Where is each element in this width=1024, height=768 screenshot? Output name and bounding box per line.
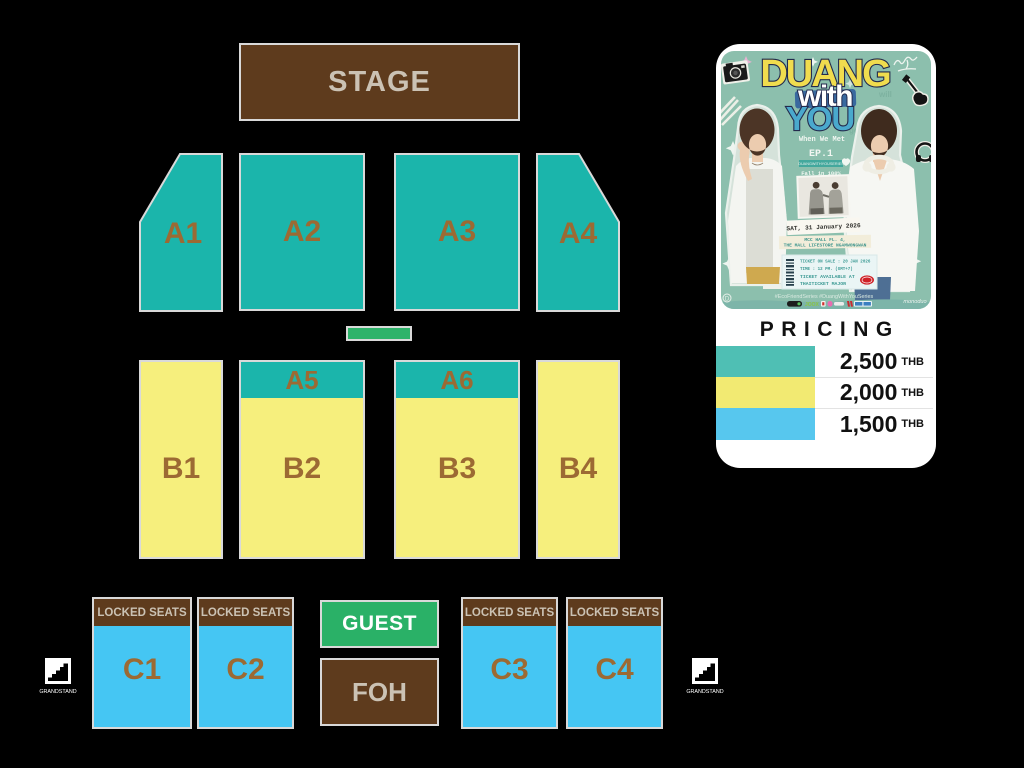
svg-text:GRANDSTAND: GRANDSTAND — [39, 689, 76, 695]
svg-text:JOOX: JOOX — [805, 302, 820, 308]
svg-text:TIME : 12 PM. (GMT+7): TIME : 12 PM. (GMT+7) — [800, 267, 853, 272]
svg-text:monoduo: monoduo — [903, 299, 926, 305]
svg-text:THAITICKET MAJOR: THAITICKET MAJOR — [800, 281, 846, 287]
svg-text:GRANDSTAND: GRANDSTAND — [686, 689, 723, 695]
svg-text:#EcoFriendSeries #DuangWithYo: #EcoFriendSeries #DuangWithYouSeries — [775, 294, 874, 300]
svg-text:When We Met: When We Met — [799, 136, 845, 144]
svg-text:TICKET AVAILABLE AT: TICKET AVAILABLE AT — [800, 274, 855, 280]
svg-text:TICKET ON SALE : 20 JAN 2026: TICKET ON SALE : 20 JAN 2026 — [800, 261, 871, 265]
svg-text:D: D — [725, 297, 730, 303]
svg-text:A1: A1 — [164, 217, 202, 250]
svg-text:MCC HALL FL. 4,: MCC HALL FL. 4, — [804, 237, 845, 243]
svg-text:A4: A4 — [559, 217, 598, 250]
svg-text:THE MALL LIFESTORE NGAMWONGWAN: THE MALL LIFESTORE NGAMWONGWAN — [784, 243, 867, 249]
svg-text:DUANGWITHYOUSERIES: DUANGWITHYOUSERIES — [798, 162, 844, 166]
svg-text:YOU: YOU — [786, 100, 855, 137]
svg-text:Fall in 100%: Fall in 100% — [801, 170, 841, 177]
svg-text:EP.1: EP.1 — [809, 149, 833, 160]
